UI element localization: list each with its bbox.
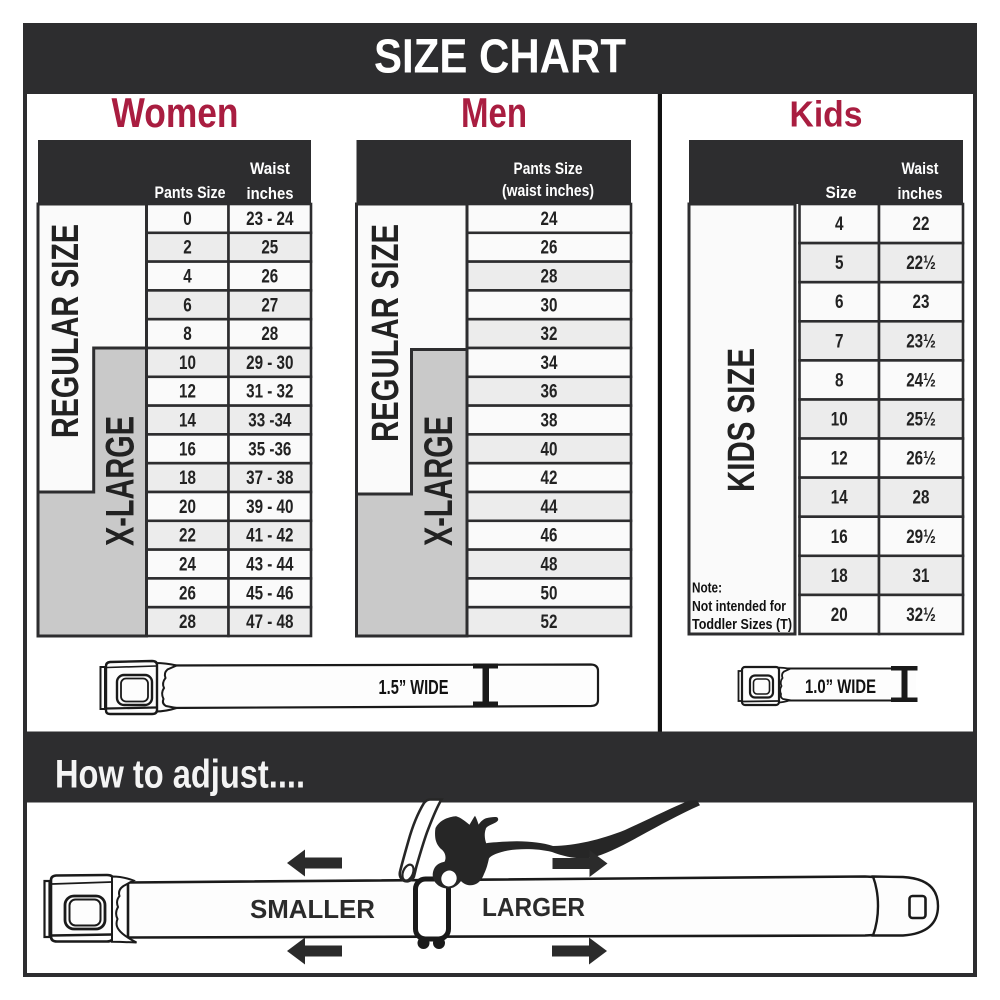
svg-text:18: 18 bbox=[179, 468, 196, 489]
svg-text:inches: inches bbox=[247, 184, 294, 203]
svg-text:inches: inches bbox=[898, 184, 943, 203]
svg-text:6: 6 bbox=[835, 292, 844, 313]
svg-text:23: 23 bbox=[913, 292, 930, 313]
svg-text:44: 44 bbox=[541, 497, 558, 518]
svg-text:(waist inches): (waist inches) bbox=[502, 181, 594, 200]
svg-text:14: 14 bbox=[179, 411, 196, 432]
svg-text:Not intended for: Not intended for bbox=[692, 598, 786, 615]
svg-text:34: 34 bbox=[541, 353, 558, 374]
svg-text:26: 26 bbox=[179, 583, 196, 604]
svg-text:35 -36: 35 -36 bbox=[248, 439, 291, 460]
svg-text:14: 14 bbox=[831, 488, 848, 509]
svg-text:Waist: Waist bbox=[250, 159, 290, 178]
svg-text:Toddler Sizes (T): Toddler Sizes (T) bbox=[692, 616, 792, 633]
svg-text:22: 22 bbox=[179, 526, 196, 547]
svg-text:28: 28 bbox=[913, 488, 930, 509]
svg-text:40: 40 bbox=[541, 439, 558, 460]
svg-text:Men: Men bbox=[461, 89, 527, 136]
svg-text:20: 20 bbox=[831, 605, 848, 626]
svg-text:KIDS SIZE: KIDS SIZE bbox=[721, 348, 763, 492]
svg-text:31 - 32: 31 - 32 bbox=[246, 382, 293, 403]
svg-text:29 - 30: 29 - 30 bbox=[246, 353, 293, 374]
svg-text:26: 26 bbox=[261, 267, 278, 288]
svg-text:25: 25 bbox=[261, 238, 278, 259]
svg-text:52: 52 bbox=[541, 612, 558, 633]
svg-text:5: 5 bbox=[835, 253, 844, 274]
svg-text:X-LARGE: X-LARGE bbox=[99, 416, 143, 546]
svg-text:28: 28 bbox=[179, 612, 196, 633]
svg-text:36: 36 bbox=[541, 382, 558, 403]
svg-text:29½: 29½ bbox=[906, 527, 936, 548]
svg-text:28: 28 bbox=[541, 267, 558, 288]
svg-text:38: 38 bbox=[541, 411, 558, 432]
svg-text:1.0” WIDE: 1.0” WIDE bbox=[805, 677, 876, 698]
svg-text:SIZE CHART: SIZE CHART bbox=[374, 31, 626, 84]
svg-text:24: 24 bbox=[179, 555, 196, 576]
svg-text:Kids: Kids bbox=[790, 94, 863, 135]
svg-text:Note:: Note: bbox=[692, 580, 722, 597]
svg-text:0: 0 bbox=[183, 209, 192, 230]
svg-text:22½: 22½ bbox=[906, 253, 936, 274]
svg-text:42: 42 bbox=[541, 468, 558, 489]
svg-text:How to adjust....: How to adjust.... bbox=[55, 753, 305, 797]
svg-text:20: 20 bbox=[179, 497, 196, 518]
svg-text:12: 12 bbox=[831, 449, 848, 470]
svg-text:Women: Women bbox=[112, 89, 239, 136]
svg-text:32½: 32½ bbox=[906, 605, 936, 626]
svg-text:37 - 38: 37 - 38 bbox=[246, 468, 293, 489]
svg-text:45 - 46: 45 - 46 bbox=[246, 583, 293, 604]
svg-text:18: 18 bbox=[831, 566, 848, 587]
svg-text:10: 10 bbox=[831, 410, 848, 431]
svg-text:12: 12 bbox=[179, 382, 196, 403]
svg-text:26½: 26½ bbox=[906, 449, 936, 470]
svg-text:1.5” WIDE: 1.5” WIDE bbox=[379, 677, 449, 699]
svg-text:16: 16 bbox=[831, 527, 848, 548]
svg-text:26: 26 bbox=[541, 238, 558, 259]
svg-text:8: 8 bbox=[183, 324, 192, 345]
svg-text:4: 4 bbox=[835, 214, 844, 235]
svg-text:6: 6 bbox=[183, 295, 192, 316]
svg-text:Pants Size: Pants Size bbox=[514, 159, 583, 178]
svg-text:39 - 40: 39 - 40 bbox=[246, 497, 293, 518]
svg-text:10: 10 bbox=[179, 353, 196, 374]
svg-text:REGULAR SIZE: REGULAR SIZE bbox=[45, 224, 87, 438]
svg-text:25½: 25½ bbox=[906, 410, 936, 431]
svg-text:16: 16 bbox=[179, 439, 196, 460]
svg-text:4: 4 bbox=[183, 267, 192, 288]
svg-text:48: 48 bbox=[541, 555, 558, 576]
svg-text:LARGER: LARGER bbox=[482, 892, 585, 922]
svg-text:41 - 42: 41 - 42 bbox=[246, 526, 293, 547]
svg-text:2: 2 bbox=[183, 238, 192, 259]
svg-text:Waist: Waist bbox=[902, 159, 939, 178]
svg-text:23 - 24: 23 - 24 bbox=[246, 209, 294, 230]
svg-text:43 - 44: 43 - 44 bbox=[246, 555, 294, 576]
svg-text:24½: 24½ bbox=[906, 370, 936, 391]
svg-text:50: 50 bbox=[541, 583, 558, 604]
svg-text:SMALLER: SMALLER bbox=[250, 894, 375, 924]
svg-text:8: 8 bbox=[835, 370, 844, 391]
svg-text:X-LARGE: X-LARGE bbox=[417, 416, 461, 546]
svg-text:24: 24 bbox=[541, 209, 558, 230]
svg-text:32: 32 bbox=[541, 324, 558, 345]
svg-text:28: 28 bbox=[261, 324, 278, 345]
svg-text:30: 30 bbox=[541, 295, 558, 316]
svg-text:46: 46 bbox=[541, 526, 558, 547]
svg-text:33 -34: 33 -34 bbox=[248, 411, 291, 432]
svg-text:Pants Size: Pants Size bbox=[155, 183, 226, 202]
svg-text:7: 7 bbox=[835, 331, 844, 352]
svg-text:REGULAR SIZE: REGULAR SIZE bbox=[365, 224, 407, 442]
svg-text:47 - 48: 47 - 48 bbox=[246, 612, 293, 633]
svg-text:22: 22 bbox=[913, 214, 930, 235]
svg-text:31: 31 bbox=[913, 566, 930, 587]
svg-text:23½: 23½ bbox=[906, 331, 936, 352]
svg-text:Size: Size bbox=[826, 183, 857, 202]
svg-text:27: 27 bbox=[261, 295, 278, 316]
